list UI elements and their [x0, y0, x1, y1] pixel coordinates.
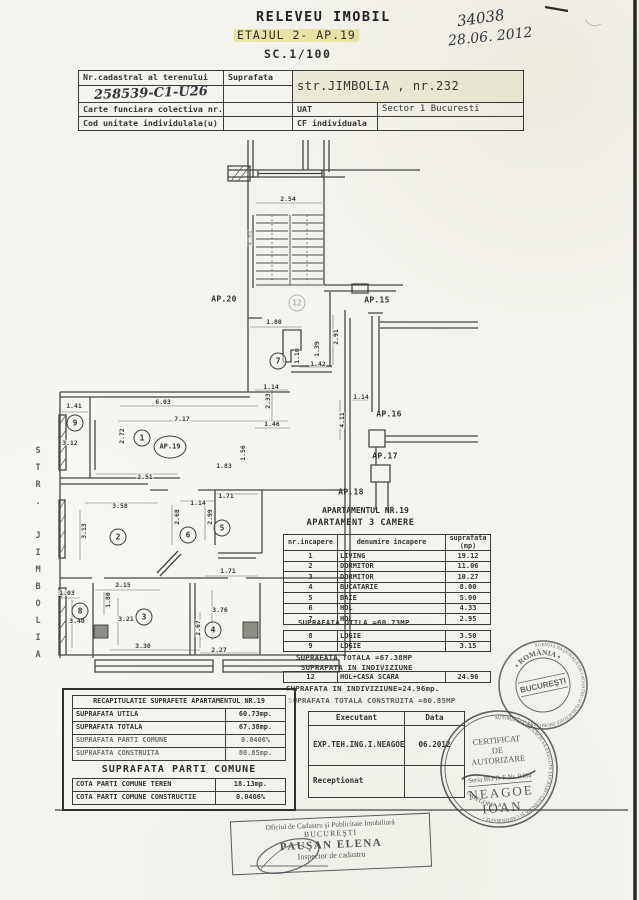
- apartment-unit-label: AP.16: [376, 410, 402, 419]
- dimension-label: 1.14: [262, 384, 279, 390]
- suprafata-totala-line: SUPRAFATA TOTALA =67.38MP: [296, 654, 412, 663]
- room-row: 1 LIVING 19.12: [284, 551, 491, 562]
- indiviziune-row: 12 HOL+CASA SCARA 24.96: [284, 672, 491, 683]
- dimension-label: 1.10: [294, 347, 300, 364]
- cota-table: COTA PARTI COMUNE TEREN 18.13mp. COTA PA…: [72, 778, 286, 805]
- construita-line: SUPRAFATA TOTALA CONSTRUITA =80.85MP: [288, 697, 455, 706]
- room-number: AP.19: [154, 436, 187, 459]
- dimension-label: 1.80: [265, 319, 282, 325]
- apartment-unit-label: AP.15: [364, 296, 390, 305]
- dimension-label: 2.15: [114, 582, 131, 588]
- cota-row: COTA PARTI COMUNE TEREN 18.13mp.: [73, 778, 286, 791]
- dimension-label: 2.91: [333, 328, 339, 345]
- label-cod-unitate: Cod unitate individulala(u): [79, 117, 224, 131]
- dimension-label: 6.03: [154, 399, 171, 405]
- address-value: str.JIMBOLIA , nr.232: [293, 71, 524, 103]
- room-number: 8: [72, 603, 89, 620]
- label-carte-funciara: Carte funciara colectiva nr.: [79, 103, 224, 117]
- room-areas-table: nr.incapere denumire incapere suprafata(…: [283, 534, 491, 625]
- room-number: 1: [134, 430, 151, 447]
- dimension-label: 2.54: [279, 196, 296, 202]
- recap-row: SUPRAFATA UTILA 60.73mp.: [73, 709, 286, 722]
- dimension-label: 2.72: [119, 427, 125, 444]
- dimension-label: 3.76: [211, 607, 228, 613]
- indiviziune-table: 12 HOL+CASA SCARA 24.96: [283, 671, 491, 683]
- scale-label: SC.1/100: [264, 48, 331, 61]
- dimension-label: 3.58: [111, 503, 128, 509]
- executant-name: EXP.TEH.ING.I.NEAGOE: [309, 726, 405, 766]
- room-row: 6 HOL 4.33: [284, 603, 491, 614]
- dimension-label: 3.12: [61, 440, 78, 446]
- col-header-nr: nr.incapere: [284, 535, 338, 551]
- dimension-label: 1.03: [58, 590, 75, 596]
- certificat-round-stamp: AUTORIZATĂ DE ANCPI SĂ EXECUTE LUCRĂRI •…: [437, 704, 561, 834]
- apartment-unit-label: AP.18: [338, 488, 364, 497]
- room-number: 4: [205, 622, 222, 639]
- room-number: 3: [136, 609, 153, 626]
- dimension-label: 1.83: [215, 463, 232, 469]
- dimension-label: 1.14: [189, 500, 206, 506]
- room-row: 3 DORMITOR 10.27: [284, 572, 491, 583]
- indiviziune-note: SUPRAFATA IN INDIVIZIUNE=24.96mp.: [286, 685, 439, 694]
- dimension-label: 2.51: [136, 474, 153, 480]
- dimension-label: 2.33: [265, 392, 271, 409]
- street-name-vertical: STR. JIMBOLIA: [33, 446, 43, 667]
- apartment-unit-label: AP.17: [372, 452, 398, 461]
- dimension-label: 1.80: [105, 591, 111, 608]
- dimension-label: 1.39: [314, 340, 320, 357]
- recap-header: RECAPITULATIE SUPRAFETE APARTAMENTUL NR.…: [73, 696, 286, 709]
- recap-box: RECAPITULATIE SUPRAFETE APARTAMENTUL NR.…: [62, 688, 296, 811]
- dimension-label: 7.17: [173, 416, 190, 422]
- label-uat: UAT: [293, 103, 378, 117]
- scanned-document-page: RELEVEU IMOBIL ETAJUL 2- AP.19 SC.1/100 …: [0, 0, 639, 900]
- suprafata-utila-line: SUPRAFATA UTILA =60.73MP: [298, 619, 410, 628]
- label-cf-individuala: CF individuala: [293, 117, 378, 131]
- label-nr-cadastral: Nr.cadastral al terenului: [79, 71, 224, 86]
- dimension-label: 4.01: [247, 229, 253, 246]
- room-number: 6: [180, 527, 197, 544]
- inspector-signature: [240, 826, 330, 886]
- col-header-sup: suprafata(mp): [446, 535, 491, 551]
- dimension-label: 2.99: [207, 508, 213, 525]
- dimension-label: 1.14: [352, 394, 369, 400]
- cert-line3: AUTORIZARE: [471, 753, 526, 768]
- apartment-subheading: APARTAMENT 3 CAMERE: [278, 519, 443, 529]
- dimension-label: 3.30: [134, 643, 151, 649]
- logie-row: 9 LOGIE 3.15: [284, 641, 491, 652]
- dimension-label: 2.68: [174, 508, 180, 525]
- structural-columns: [94, 622, 258, 638]
- receptionat-label: Receptionat: [309, 766, 405, 798]
- col-header-den: denumire incapere: [338, 535, 446, 551]
- cota-row: COTA PARTI COMUNE CONSTRUCTIE 0.0406%: [73, 791, 286, 804]
- recap-table: RECAPITULATIE SUPRAFETE APARTAMENTUL NR.…: [72, 695, 286, 709]
- room-number: 2: [110, 529, 127, 546]
- dimension-label: 1.71: [217, 493, 234, 499]
- suprafata-value-empty: [224, 86, 293, 103]
- room-row: 5 BAIE 5.00: [284, 593, 491, 604]
- cf-value-empty: [378, 117, 524, 131]
- dimension-label: 1.41: [65, 403, 82, 409]
- room-row: 4 BUCATARIE 8.00: [284, 582, 491, 593]
- floor-apartment-subtitle: ETAJUL 2- AP.19: [234, 29, 359, 42]
- room-number: 12: [289, 295, 306, 312]
- uat-value: Sector 1 Bucuresti: [378, 103, 524, 117]
- room-number: 9: [67, 415, 84, 432]
- carte-funciara-empty: [224, 103, 293, 117]
- dimension-label: 1.56: [240, 444, 246, 461]
- stair-treads: [256, 215, 323, 285]
- logie-row: 8 LOGIE 3.50: [284, 631, 491, 642]
- recap-row: SUPRAFATA PARTI COMUNE 0.0406%: [73, 735, 286, 748]
- dimension-label: 4.11: [339, 411, 345, 428]
- recap-row: SUPRAFATA CONSTRUITA 80.85mp.: [73, 748, 286, 761]
- room-row: 2 DORMITOR 11.06: [284, 561, 491, 572]
- apartment-unit-label: AP.20: [211, 295, 237, 304]
- room-number: 5: [214, 520, 231, 537]
- dimension-label: 3.21: [117, 616, 134, 622]
- dimension-label: 1.71: [219, 568, 236, 574]
- logie-table: 8 LOGIE 3.50 9 LOGIE 3.15: [283, 630, 491, 652]
- dimension-label: 2.27: [210, 647, 227, 653]
- room-number: 7: [270, 353, 287, 370]
- dimension-label: 1.42: [309, 361, 326, 367]
- handwritten-registration-number: 34038: [456, 7, 506, 31]
- executant-header: Executant: [309, 712, 405, 726]
- cod-unitate-empty: [224, 117, 293, 131]
- dimension-label: 1.46: [263, 421, 280, 427]
- dimension-label: 3.13: [81, 522, 87, 539]
- document-title: RELEVEU IMOBIL: [256, 10, 391, 26]
- recap-row: SUPRAFATA TOTALA 67.38mp.: [73, 722, 286, 735]
- recap-values-table: SUPRAFATA UTILA 60.73mp. SUPRAFATA TOTAL…: [72, 708, 286, 761]
- handwritten-cadastral-number: 258539-C1-U26: [94, 86, 208, 103]
- dimension-label: 2.67: [195, 619, 201, 636]
- apartment-heading: APARTAMENTUL NR.19: [283, 506, 448, 515]
- cadastral-header-table: Nr.cadastral al terenului Suprafata str.…: [78, 70, 524, 131]
- parti-comune-subtitle: SUPRAFATA PARTI COMUNE: [72, 764, 286, 776]
- label-suprafata: Suprafata: [224, 71, 293, 86]
